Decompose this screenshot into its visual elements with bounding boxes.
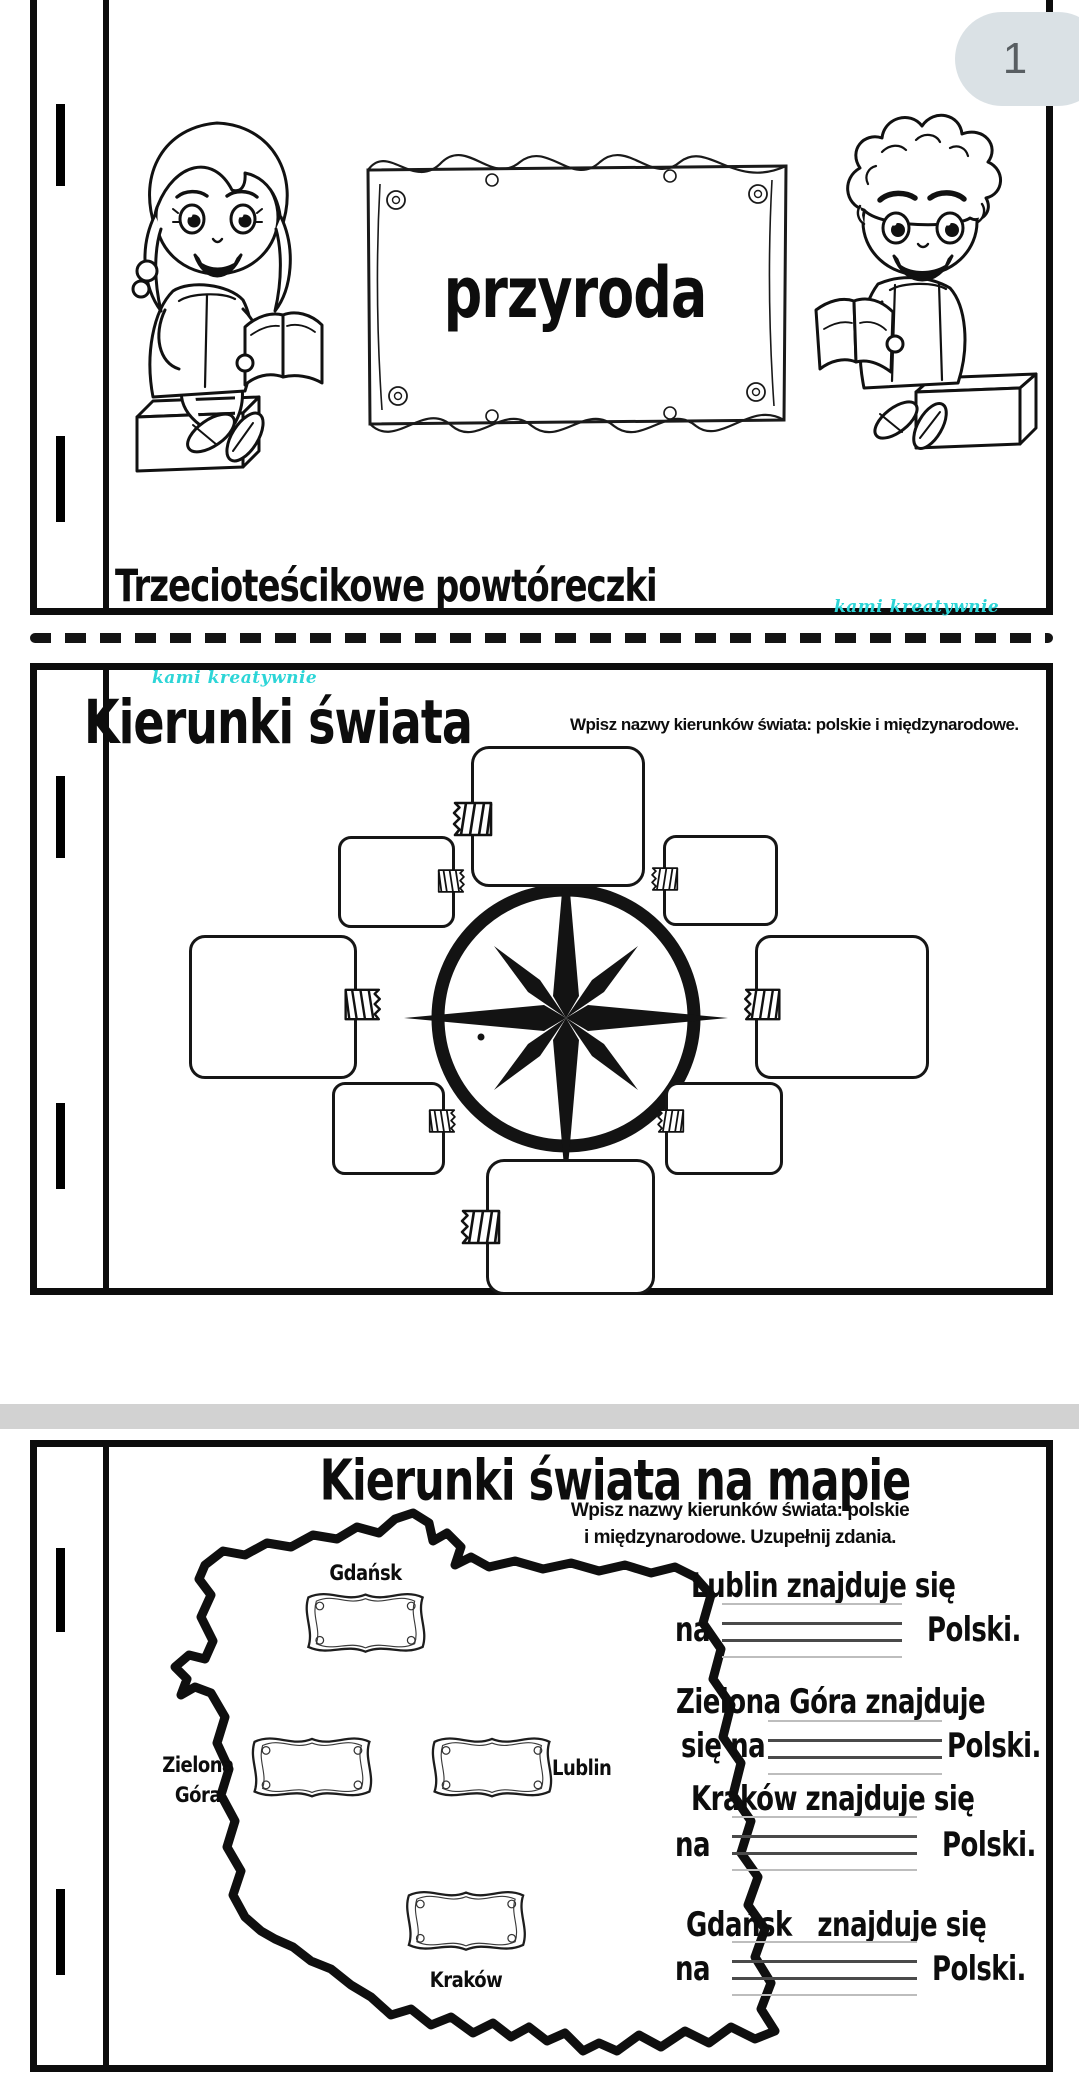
city-label-gdansk: Gdańsk	[296, 1561, 435, 1586]
sentence-word: na	[675, 1826, 710, 1865]
sentence-word: Polski.	[947, 1727, 1041, 1766]
tape-icon	[445, 800, 495, 838]
binding-mark	[56, 104, 65, 186]
tape-icon	[341, 987, 389, 1022]
answer-box-north	[471, 746, 645, 887]
worksheet-preview: { "viewer": { "page_badge": "1", "badge_…	[0, 0, 1079, 2085]
page-number-badge: 1	[955, 12, 1079, 106]
writing-lines	[732, 1941, 917, 1997]
city-plaque-krakow	[399, 1884, 533, 1964]
tape-icon	[646, 866, 680, 892]
answer-box-west	[189, 935, 357, 1079]
sentence-line: Gdańsk znajduje się	[686, 1906, 986, 1945]
boy-reading-illustration	[798, 92, 1043, 452]
city-plaque-lublin	[425, 1729, 559, 1812]
city-label-krakow: Kraków	[399, 1968, 533, 1993]
sentence-word: się na	[681, 1727, 765, 1766]
section-gap-band	[0, 1404, 1079, 1429]
city-plaque-zielona-gora	[245, 1729, 379, 1812]
sentence-word: Polski.	[932, 1950, 1026, 1989]
brand-watermark: kami kreatywnie	[834, 597, 999, 617]
writing-lines	[732, 1816, 917, 1872]
binding-mark	[56, 1548, 65, 1632]
sentence-word: Polski.	[942, 1826, 1036, 1865]
sentence-line: Kraków znajduje się	[691, 1780, 974, 1819]
binding-mark	[56, 1103, 65, 1189]
tape-icon	[736, 987, 784, 1022]
cover-footer-title: Trzecioteścikowe powtóreczki	[115, 560, 657, 613]
worksheet-title-directions: Kierunki świata	[84, 686, 472, 757]
sentence-line: Zielona Góra znajduje	[676, 1683, 985, 1722]
sentence-word: na	[675, 1611, 710, 1650]
binding-mark	[56, 436, 65, 522]
sentence-word: na	[675, 1950, 710, 1989]
writing-lines	[722, 1603, 902, 1659]
city-label-lublin: Lublin	[552, 1756, 632, 1781]
city-plaque-gdansk	[296, 1586, 435, 1666]
margin-line-page-2	[103, 666, 109, 1292]
worksheet-instruction: Wpisz nazwy kierunków świata: polskie i …	[570, 715, 1019, 735]
binding-mark	[56, 1889, 65, 1975]
city-label-zielona-gora-line-1: Zielona	[150, 1753, 246, 1778]
tape-icon	[452, 1208, 504, 1246]
girl-reading-illustration	[95, 95, 350, 485]
cover-title: przyroda	[400, 252, 750, 334]
cut-line	[30, 633, 1053, 643]
binding-mark	[56, 776, 65, 858]
tape-icon	[427, 1108, 461, 1134]
answer-box-north-east	[663, 835, 778, 926]
sentence-line: Lublin znajduje się	[691, 1567, 955, 1606]
sentence-word: Polski.	[927, 1611, 1021, 1650]
brand-watermark: kami kreatywnie	[152, 668, 317, 688]
tape-icon	[652, 1108, 686, 1134]
writing-lines	[768, 1720, 942, 1776]
city-label-zielona-gora-line-2: Góra	[150, 1783, 246, 1808]
tape-icon	[436, 868, 470, 894]
answer-box-south	[486, 1159, 655, 1295]
